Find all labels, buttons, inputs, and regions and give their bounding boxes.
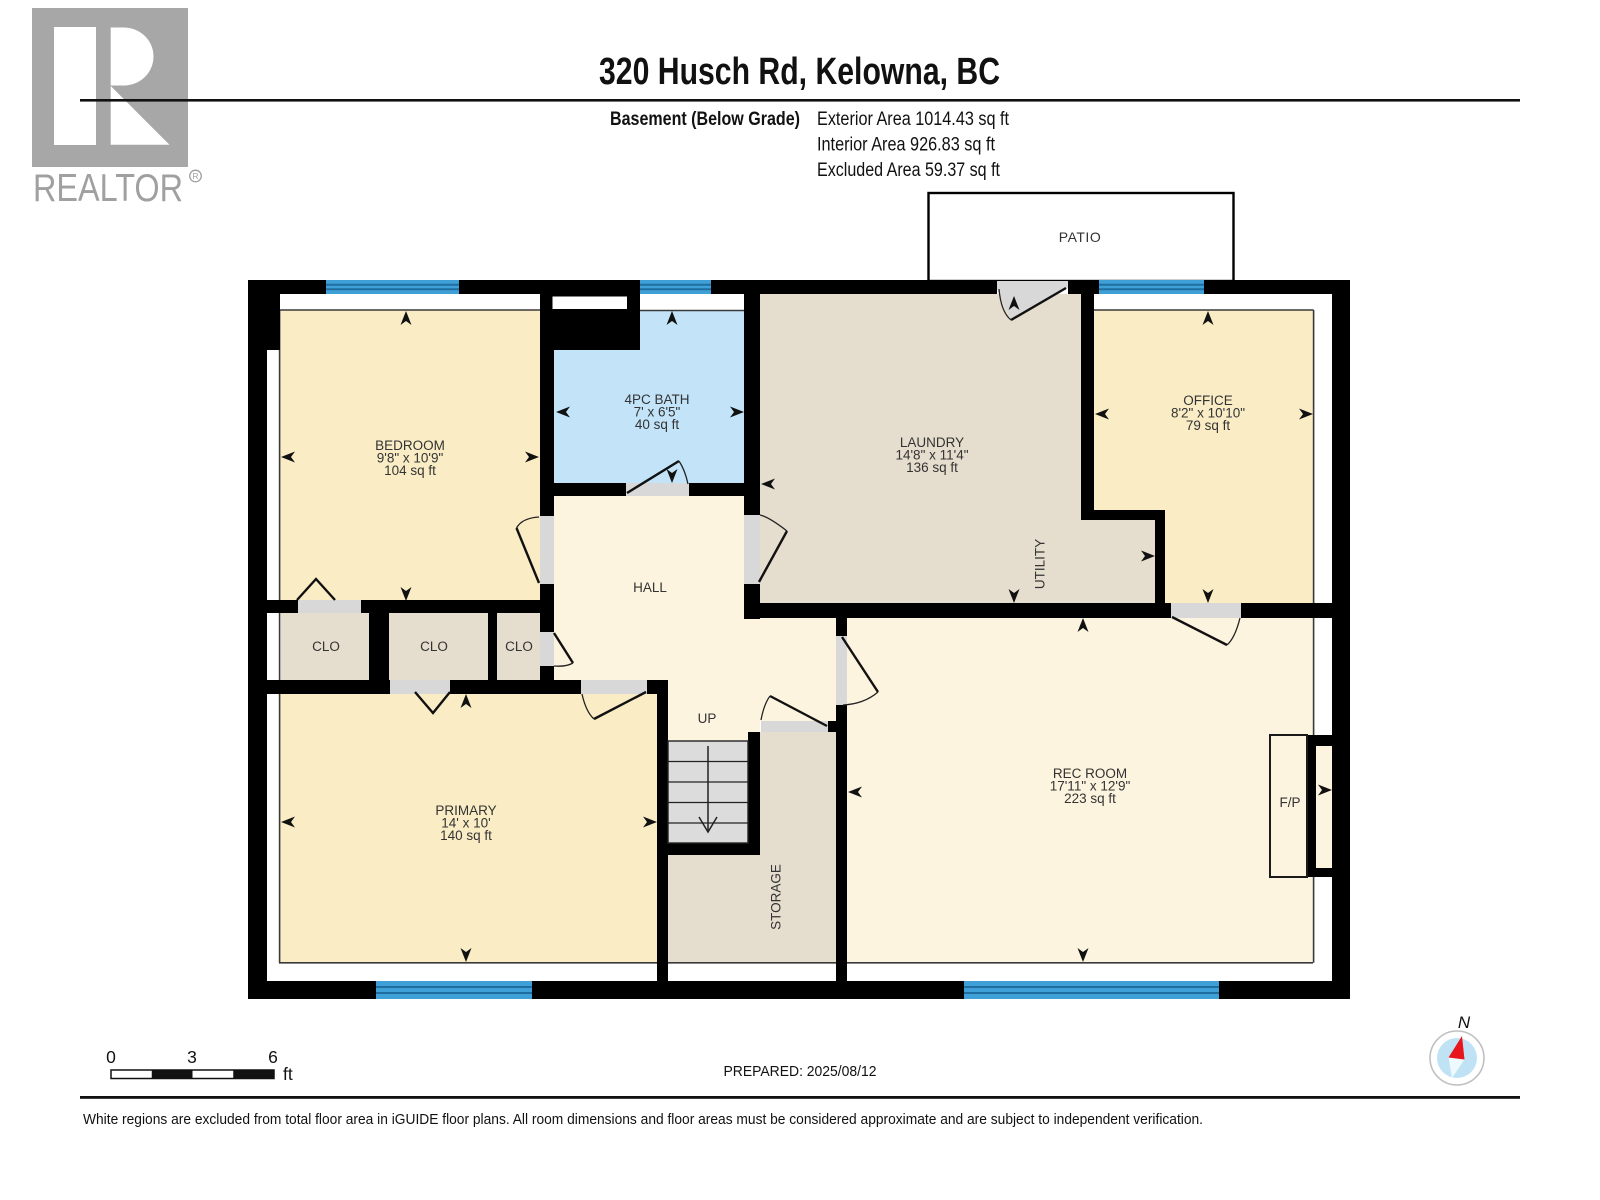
svg-text:White regions are excluded fro: White regions are excluded from total fl… (83, 1112, 1203, 1128)
svg-text:F/P: F/P (1279, 795, 1300, 810)
svg-text:40 sq ft: 40 sq ft (635, 417, 680, 432)
svg-text:6: 6 (268, 1047, 278, 1067)
svg-text:Interior Area 926.83 sq ft: Interior Area 926.83 sq ft (817, 135, 996, 156)
svg-text:R: R (192, 171, 198, 181)
svg-text:140 sq ft: 140 sq ft (440, 828, 492, 843)
svg-text:104 sq ft: 104 sq ft (384, 463, 436, 478)
svg-text:HALL: HALL (633, 580, 667, 595)
svg-text:UP: UP (698, 711, 717, 726)
svg-text:Excluded Area 59.37 sq ft: Excluded Area 59.37 sq ft (817, 160, 1001, 181)
svg-text:PREPARED: 2025/08/12: PREPARED: 2025/08/12 (724, 1063, 877, 1080)
svg-text:Exterior Area 1014.43 sq ft: Exterior Area 1014.43 sq ft (817, 109, 1010, 130)
svg-text:N: N (1458, 1013, 1471, 1032)
svg-text:0: 0 (106, 1047, 116, 1067)
svg-text:UTILITY: UTILITY (1033, 539, 1048, 589)
svg-text:223 sq ft: 223 sq ft (1064, 791, 1116, 806)
svg-text:320 Husch Rd, Kelowna, BC: 320 Husch Rd, Kelowna, BC (599, 51, 1000, 93)
svg-text:PATIO: PATIO (1059, 229, 1101, 245)
svg-text:CLO: CLO (505, 639, 533, 654)
svg-text:REALTOR: REALTOR (33, 167, 183, 210)
svg-text:Basement (Below Grade): Basement (Below Grade) (610, 109, 800, 130)
svg-text:CLO: CLO (420, 639, 448, 654)
svg-text:3: 3 (187, 1047, 197, 1067)
svg-text:STORAGE: STORAGE (769, 864, 784, 930)
svg-text:79 sq ft: 79 sq ft (1186, 418, 1231, 433)
svg-text:136 sq ft: 136 sq ft (906, 460, 958, 475)
svg-text:ft: ft (283, 1064, 293, 1084)
svg-text:CLO: CLO (312, 639, 340, 654)
